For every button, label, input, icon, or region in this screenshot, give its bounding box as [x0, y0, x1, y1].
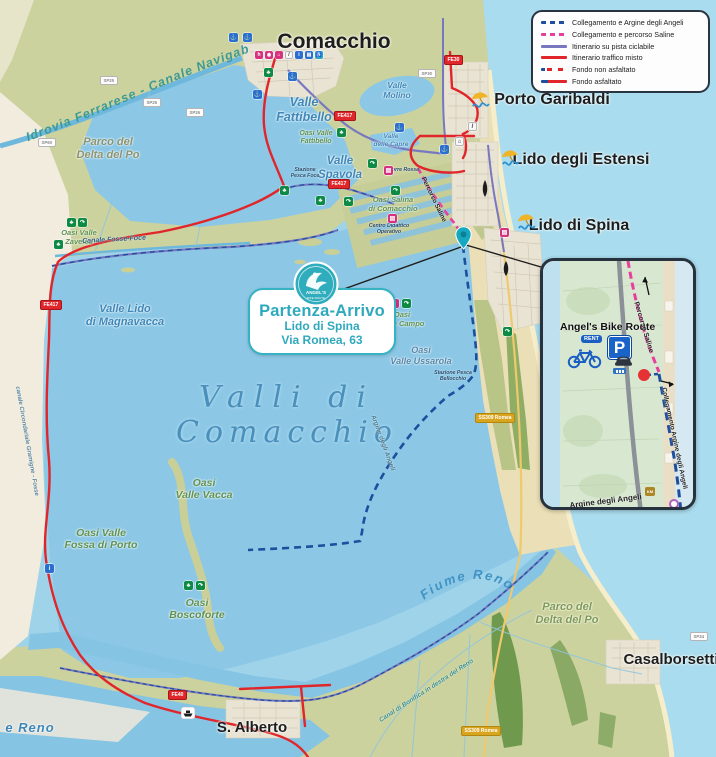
legend-label: Collegamento e Argine degli Angeli [572, 18, 683, 27]
detail-inset-map: Angel's Bike Route RENT P Percorso Salin… [540, 258, 696, 510]
centro-didattico-label: Centro DidatticoOperativo [369, 223, 409, 235]
nature-icon: ♣ [280, 186, 289, 195]
place-lido-di-spina: Lido di Spina [529, 217, 629, 235]
legend: Collegamento e Argine degli Angeli Colle… [531, 10, 710, 93]
stazione-pesca-foce-label: StazionePesca Foce [291, 167, 320, 179]
museum-icon: ▤ [500, 228, 509, 237]
nature-icon: ♣ [67, 218, 76, 227]
stazione-pesca-bellocchio-label: Stazione PescaBellocchio [434, 370, 472, 382]
nature-icon: ♣ [54, 240, 63, 249]
park-icon: ♣ [264, 68, 273, 77]
valle-fattibello-label: ValleFattibello [276, 95, 332, 125]
legend-row: Itinerario traffico misto [541, 53, 701, 62]
road-badge-fe417: FE417 [328, 179, 350, 189]
road-badge-fe40: FE40 [168, 690, 187, 700]
oasi-salina-comacchio-label: Oasi Salinadi Comacchio [368, 196, 417, 214]
legend-line-dash-pink [541, 33, 567, 36]
road-badge-sp34: SP34 [690, 632, 708, 641]
legend-label: Itinerario su pista ciclabile [572, 42, 654, 51]
parco-delta-po-nw-label: Parco delDelta del Po [77, 136, 140, 162]
anchor-icon: ⚓ [243, 33, 252, 42]
torre-rossa-label: Torre Rossa [389, 167, 419, 173]
harbour-icon: ⚓ [395, 123, 404, 132]
inset-route-endpoint [670, 500, 678, 508]
viewpoint-icon: ↷ [368, 159, 377, 168]
oasi-valle-vacca-label: OasiValle Vacca [175, 477, 232, 502]
oasi-valle-fattibello-label: Oasi ValleFattibello [299, 130, 332, 147]
beach-umbrella-icon [469, 89, 492, 110]
museum-icon: ▤ [305, 51, 313, 59]
legend-line-solid-red [541, 56, 567, 59]
legend-line-solid-purple [541, 45, 567, 48]
birdwatching-icon: i [45, 564, 54, 573]
legend-row: Fondo asfaltato [541, 77, 701, 86]
road-badge-sp26: SP26 [186, 108, 204, 117]
road-badge-sp60: SP60 [38, 138, 56, 147]
valle-lido-magnavacca-label: Valle Lidodi Magnavacca [86, 303, 164, 329]
anchor-icon: ⚓ [288, 72, 297, 81]
viewpoint-icon: ↷ [196, 581, 205, 590]
nature-icon: ♣ [316, 196, 325, 205]
angels-logo: ANGEL'S BIKE ROUTE [293, 261, 339, 307]
viewpoint-icon: ↷ [78, 218, 87, 227]
road-badge-ss309: SS309 Romea [461, 726, 501, 736]
place-porto-garibaldi: Porto Garibaldi [494, 91, 610, 109]
callout-address-line2: Via Romea, 63 [281, 334, 362, 348]
place-comacchio: Comacchio [277, 30, 390, 54]
lido-estensi-town [452, 142, 498, 226]
viewpoint-icon: ↷ [344, 197, 353, 206]
inset-basemap [543, 261, 696, 510]
lodging-icon: ⌂ [275, 51, 283, 59]
legend-line-dash-blue [541, 21, 567, 24]
start-finish-pin [455, 226, 472, 250]
parking-detail-sign [613, 368, 626, 374]
legend-label: Itinerario traffico misto [572, 53, 643, 62]
road-badge-sp25: SP25 [143, 98, 161, 107]
road-badge-fe417: FE417 [334, 111, 356, 121]
logo-text-bottom: BIKE ROUTE [307, 296, 325, 300]
beach-umbrella-icon [515, 211, 538, 232]
ferry-icon [181, 707, 195, 719]
anchor-icon: ⚓ [253, 90, 262, 99]
map-canvas: Idrovia Ferrarese - Canale Navigabile Fi… [0, 0, 716, 757]
km-badge: KM [645, 487, 655, 496]
oasi-boscoforte-label: OasiBoscoforte [169, 597, 224, 622]
lodging-icon: ⌂ [455, 137, 464, 146]
callout-address-line1: Lido di Spina [284, 320, 359, 334]
torre-rossa-icon: ▤ [384, 166, 393, 175]
nature-icon: ♣ [337, 128, 346, 137]
viewpoint-icon: ↷ [391, 186, 400, 195]
hotel-icon: h [255, 51, 263, 59]
e-reno-label: e Reno [5, 720, 54, 735]
beach-umbrella-icon [499, 147, 522, 168]
car-icon [613, 356, 634, 367]
inset-start-dot [638, 369, 650, 381]
legend-row: Itinerario su pista ciclabile [541, 42, 701, 51]
camera-icon: ◉ [265, 51, 273, 59]
legend-label: Collegamento e percorso Saline [572, 30, 674, 39]
bicycle-icon [567, 347, 603, 369]
centro-didattico-icon: ▤ [388, 214, 397, 223]
legend-row: Collegamento e percorso Saline [541, 30, 701, 39]
parco-delta-po-se-label: Parco delDelta del Po [536, 601, 599, 627]
road-badge-sp25: SP25 [100, 76, 118, 85]
rent-badge: RENT [581, 335, 602, 343]
oasi-valle-fossa-di-porto-label: Oasi ValleFossa di Porto [65, 527, 138, 552]
valle-molino-label: ValleMolino [383, 80, 410, 100]
legend-label: Fondo non asfaltato [572, 65, 636, 74]
viewpoint-icon: ↷ [402, 299, 411, 308]
valle-delle-capre-label: Valledelle Capre [373, 133, 408, 148]
road-badge-ss309: SS309 Romea [475, 413, 515, 423]
anchor-icon: ⚓ [440, 145, 449, 154]
legend-line-solid-bicolor [541, 80, 567, 83]
anchor-icon: ⚓ [229, 33, 238, 42]
legend-line-dash-bicolor [541, 68, 567, 71]
place-s-alberto: S. Alberto [217, 719, 287, 736]
legend-row: Collegamento e Argine degli Angeli [541, 18, 701, 27]
valli-di-comacchio-title-line1: Valli di [199, 380, 375, 415]
info-icon: i [295, 51, 303, 59]
divider-icon: / [285, 51, 293, 59]
accessibility-icon: ♿ [315, 51, 323, 59]
logo-text-top: ANGEL'S [306, 290, 326, 295]
place-casalborsetti: Casalborsetti [623, 651, 716, 668]
nature-icon: ♣ [184, 581, 193, 590]
place-lido-degli-estensi: Lido degli Estensi [513, 151, 650, 169]
road-badge-fe30: FE30 [444, 55, 463, 65]
valli-di-comacchio-title-line2: Comacchio [176, 415, 398, 450]
road-badge-fe417: FE417 [40, 300, 62, 310]
legend-label: Fondo asfaltato [572, 77, 622, 86]
oasi-valle-ussarola-label: OasiValle Ussarola [390, 345, 451, 366]
road-badge-sp30: SP30 [418, 69, 436, 78]
legend-row: Fondo non asfaltato [541, 65, 701, 74]
viewpoint-icon: ↷ [503, 327, 512, 336]
beach-access-icon: / [468, 122, 477, 131]
